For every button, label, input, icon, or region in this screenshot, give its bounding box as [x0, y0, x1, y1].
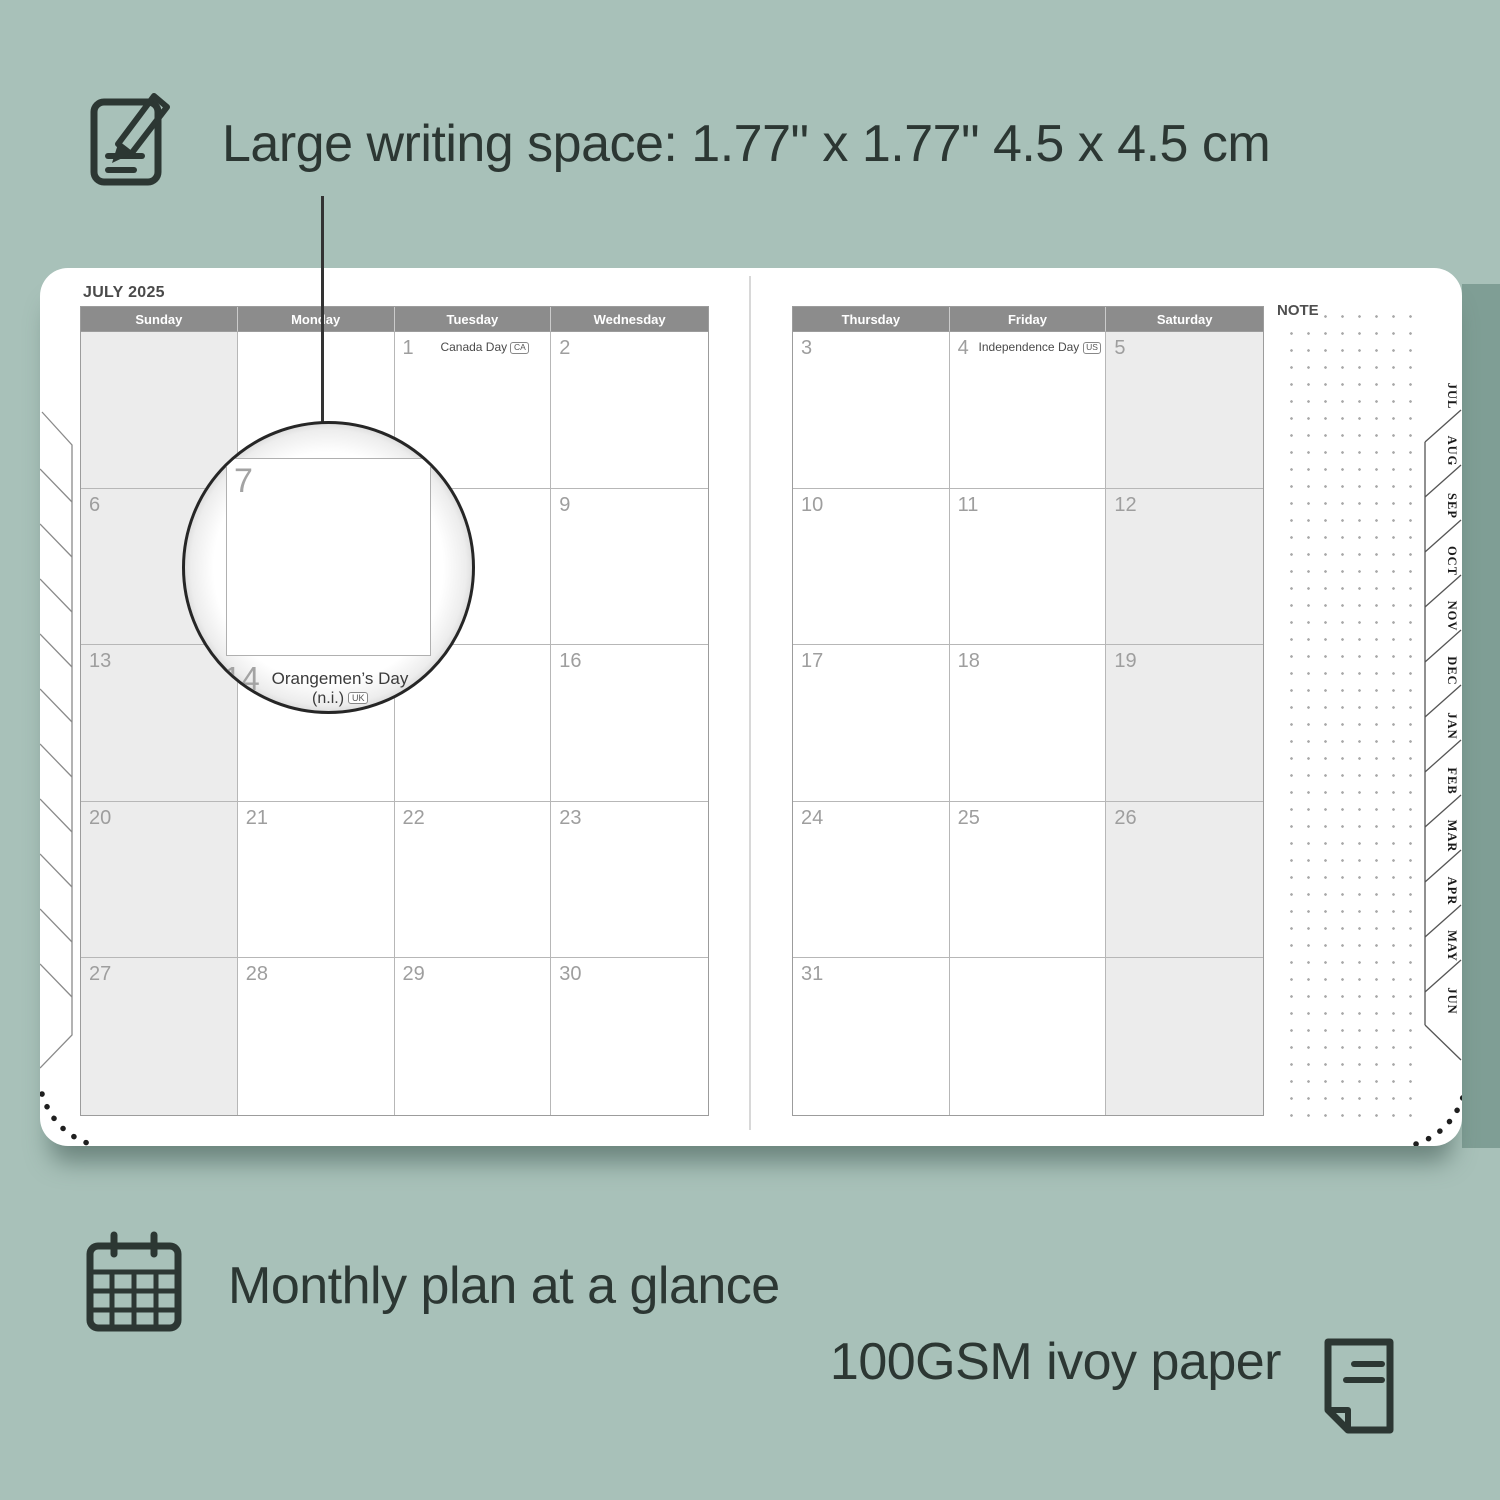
month-tab-aug: AUG: [1445, 436, 1459, 467]
holiday-country-code: UK: [348, 692, 368, 704]
calendar-cell: [1106, 958, 1263, 1115]
day-number: 13: [89, 651, 111, 671]
calendar-cell: 5: [1106, 332, 1263, 489]
month-tab-oct: OCT: [1445, 546, 1459, 576]
day-header-tuesday: Tuesday: [395, 307, 552, 332]
calendar-cell: 31: [793, 958, 950, 1115]
day-number: 30: [559, 964, 581, 984]
month-tab-mar: MAR: [1445, 820, 1459, 853]
day-number: 27: [89, 964, 111, 984]
pointer-line: [321, 196, 324, 423]
note-label: NOTE: [1277, 302, 1324, 321]
calendar-cell: 16: [551, 645, 708, 802]
calendar-cell: 19: [1106, 645, 1263, 802]
paper-annotation: 100GSM ivoy paper: [600, 1332, 1281, 1392]
calendar-cell: 11: [950, 489, 1107, 646]
day-number: 4: [958, 338, 969, 358]
day-number: 20: [89, 808, 111, 828]
day-number: 2: [559, 338, 570, 358]
month-tab-feb: FEB: [1445, 767, 1459, 794]
day-header-monday: Monday: [238, 307, 395, 332]
calendar-cell: 12: [1106, 489, 1263, 646]
calendar-cell: 20: [81, 802, 238, 959]
day-number: 19: [1114, 651, 1136, 671]
day-number: 17: [801, 651, 823, 671]
calendar-cell: 9: [551, 489, 708, 646]
product-image: Large writing space: 1.77" x 1.77" 4.5 x…: [0, 0, 1500, 1500]
day-number: 6: [89, 495, 100, 515]
calendar-cell: [950, 958, 1107, 1115]
paper-sheet-icon: [1318, 1334, 1402, 1438]
month-tab-strip: JULAUGSEPOCTNOVDECJANFEBMARAPRMAYJUN: [1425, 383, 1461, 1060]
magnified-holiday-line2: (n.i.) UK: [245, 690, 435, 708]
calendar-cell: 23: [551, 802, 708, 959]
left-page-edge-hatch: [40, 412, 72, 1068]
day-number: 24: [801, 808, 823, 828]
writing-space-annotation: Large writing space: 1.77" x 1.77" 4.5 x…: [222, 114, 1270, 174]
note-dot-grid: [1283, 308, 1423, 1125]
day-number: 16: [559, 651, 581, 671]
day-number: 11: [958, 495, 979, 515]
month-tab-jan: JAN: [1445, 712, 1459, 739]
day-number: 21: [246, 808, 268, 828]
calendar-grid-icon: [84, 1230, 184, 1334]
month-tab-dec: DEC: [1445, 656, 1459, 685]
magnifier-circle: 7 14 Orangemen’s Day (n.i.) UK: [182, 421, 475, 714]
calendar-cell: 29: [395, 958, 552, 1115]
calendar-cell: 22: [395, 802, 552, 959]
calendar-cell: 18: [950, 645, 1107, 802]
calendar-cell: 28: [238, 958, 395, 1115]
month-tab-apr: APR: [1445, 877, 1459, 906]
calendar-cell: 3: [793, 332, 950, 489]
magnified-day-number: 7: [234, 464, 253, 498]
calendar-cell: 24: [793, 802, 950, 959]
day-header-sunday: Sunday: [81, 307, 238, 332]
day-number: 10: [801, 495, 823, 515]
day-number: 28: [246, 964, 268, 984]
month-title: JULY 2025: [83, 284, 165, 302]
day-number: 25: [958, 808, 980, 828]
calendar-cell: 30: [551, 958, 708, 1115]
calendar-cell: 4Independence Day US: [950, 332, 1107, 489]
month-tab-sep: SEP: [1445, 493, 1459, 519]
holiday-label: Canada Day CA: [423, 341, 548, 355]
day-header-saturday: Saturday: [1106, 307, 1263, 332]
holiday-country-code: CA: [510, 342, 529, 354]
calendar-cell: 27: [81, 958, 238, 1115]
month-tab-nov: NOV: [1445, 601, 1459, 632]
notepad-pencil-icon: [86, 76, 188, 190]
day-number: 3: [801, 338, 812, 358]
calendar-cell: 17: [793, 645, 950, 802]
month-tab-may: MAY: [1445, 930, 1459, 962]
left-month-grid: SundayMondayTuesdayWednesday1Canada Day …: [80, 306, 709, 1116]
background-shade-band: [1462, 284, 1500, 1148]
month-tab-jul: JUL: [1445, 383, 1459, 410]
day-number: 18: [958, 651, 980, 671]
day-number: 22: [403, 808, 425, 828]
day-number: 23: [559, 808, 581, 828]
calendar-cell: 21: [238, 802, 395, 959]
day-number: 29: [403, 964, 425, 984]
day-header-thursday: Thursday: [793, 307, 950, 332]
magnified-holiday-line1: Orangemen’s Day: [245, 669, 435, 689]
holiday-label: Independence Day US: [978, 341, 1103, 355]
monthly-plan-annotation: Monthly plan at a glance: [228, 1256, 780, 1316]
right-month-grid: ThursdayFridaySaturday34Independence Day…: [792, 306, 1264, 1116]
calendar-cell: 13: [81, 645, 238, 802]
month-tab-jun: JUN: [1445, 987, 1459, 1014]
writing-space-square: [226, 458, 431, 656]
calendar-cell: 26: [1106, 802, 1263, 959]
day-header-wednesday: Wednesday: [551, 307, 708, 332]
calendar-cell: [81, 332, 238, 489]
day-number: 26: [1114, 808, 1136, 828]
calendar-cell: 10: [793, 489, 950, 646]
day-number: 9: [559, 495, 570, 515]
day-number: 1: [403, 338, 414, 358]
holiday-country-code: US: [1083, 342, 1102, 354]
calendar-cell: 2: [551, 332, 708, 489]
day-number: 12: [1114, 495, 1136, 515]
calendar-cell: 25: [950, 802, 1107, 959]
day-header-friday: Friday: [950, 307, 1107, 332]
day-number: 5: [1114, 338, 1125, 358]
day-number: 31: [801, 964, 823, 984]
